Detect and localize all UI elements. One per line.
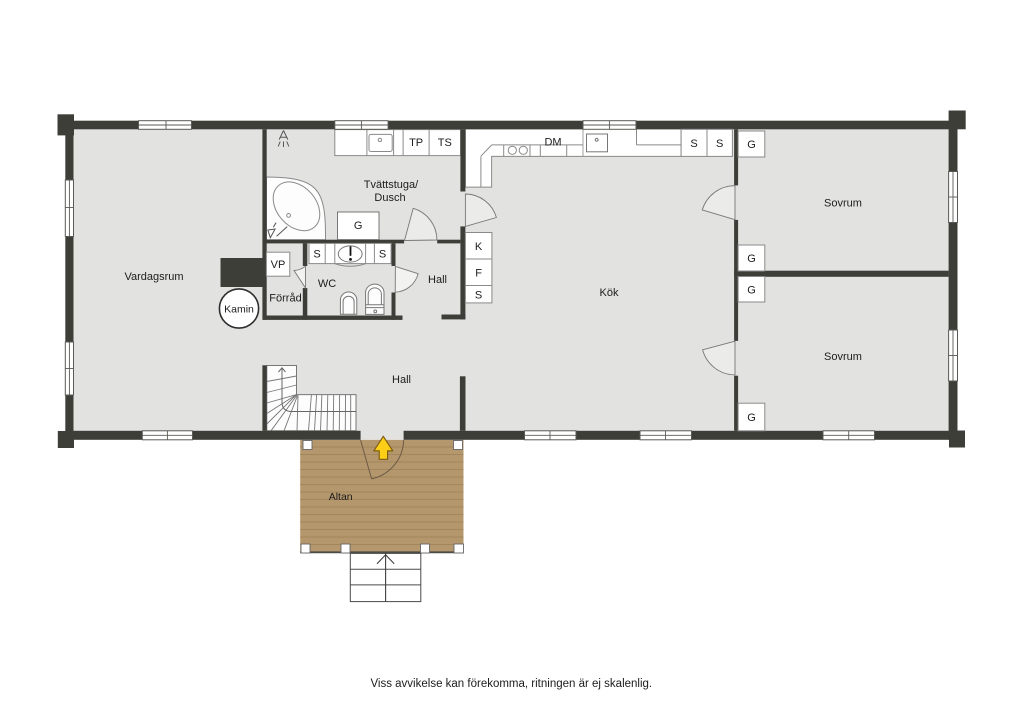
svg-text:K: K bbox=[475, 241, 483, 253]
svg-text:Vardagsrum: Vardagsrum bbox=[124, 271, 183, 283]
svg-text:S: S bbox=[716, 138, 723, 150]
svg-text:Dusch: Dusch bbox=[374, 192, 405, 204]
svg-text:TS: TS bbox=[438, 137, 452, 149]
svg-text:VP: VP bbox=[271, 259, 286, 271]
svg-text:Hall: Hall bbox=[428, 274, 447, 286]
svg-text:G: G bbox=[747, 253, 756, 265]
svg-text:Hall: Hall bbox=[392, 374, 411, 386]
svg-text:G: G bbox=[354, 220, 363, 232]
svg-text:S: S bbox=[690, 138, 697, 150]
svg-text:WC: WC bbox=[318, 278, 336, 290]
svg-text:Kök: Kök bbox=[600, 287, 619, 299]
svg-text:Förråd: Förråd bbox=[269, 293, 301, 305]
svg-text:G: G bbox=[747, 412, 756, 424]
svg-text:Altan: Altan bbox=[329, 491, 353, 503]
svg-text:G: G bbox=[747, 139, 756, 151]
svg-text:S: S bbox=[379, 249, 386, 261]
svg-text:Tvättstuga/: Tvättstuga/ bbox=[364, 179, 419, 191]
svg-text:Sovrum: Sovrum bbox=[824, 198, 862, 210]
svg-text:TP: TP bbox=[409, 137, 423, 149]
svg-text:Sovrum: Sovrum bbox=[824, 351, 862, 363]
svg-text:G: G bbox=[747, 285, 756, 297]
svg-text:F: F bbox=[475, 268, 482, 280]
svg-text:Viss avvikelse kan förekomma,: Viss avvikelse kan förekomma, ritningen … bbox=[370, 678, 652, 690]
svg-text:DM: DM bbox=[544, 137, 561, 149]
svg-text:S: S bbox=[475, 290, 482, 302]
svg-text:Kamin: Kamin bbox=[224, 304, 254, 316]
svg-text:S: S bbox=[313, 249, 320, 261]
